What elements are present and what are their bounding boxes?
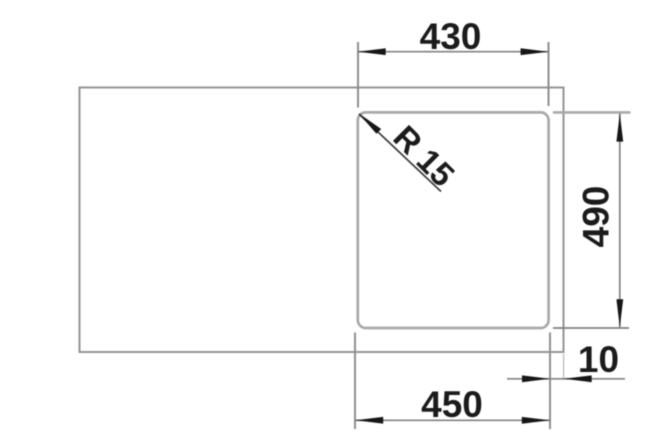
svg-text:490: 490 (576, 186, 617, 248)
svg-text:430: 430 (420, 16, 482, 57)
svg-text:R 15: R 15 (386, 118, 461, 193)
svg-text:10: 10 (578, 339, 619, 380)
svg-text:450: 450 (421, 384, 483, 425)
